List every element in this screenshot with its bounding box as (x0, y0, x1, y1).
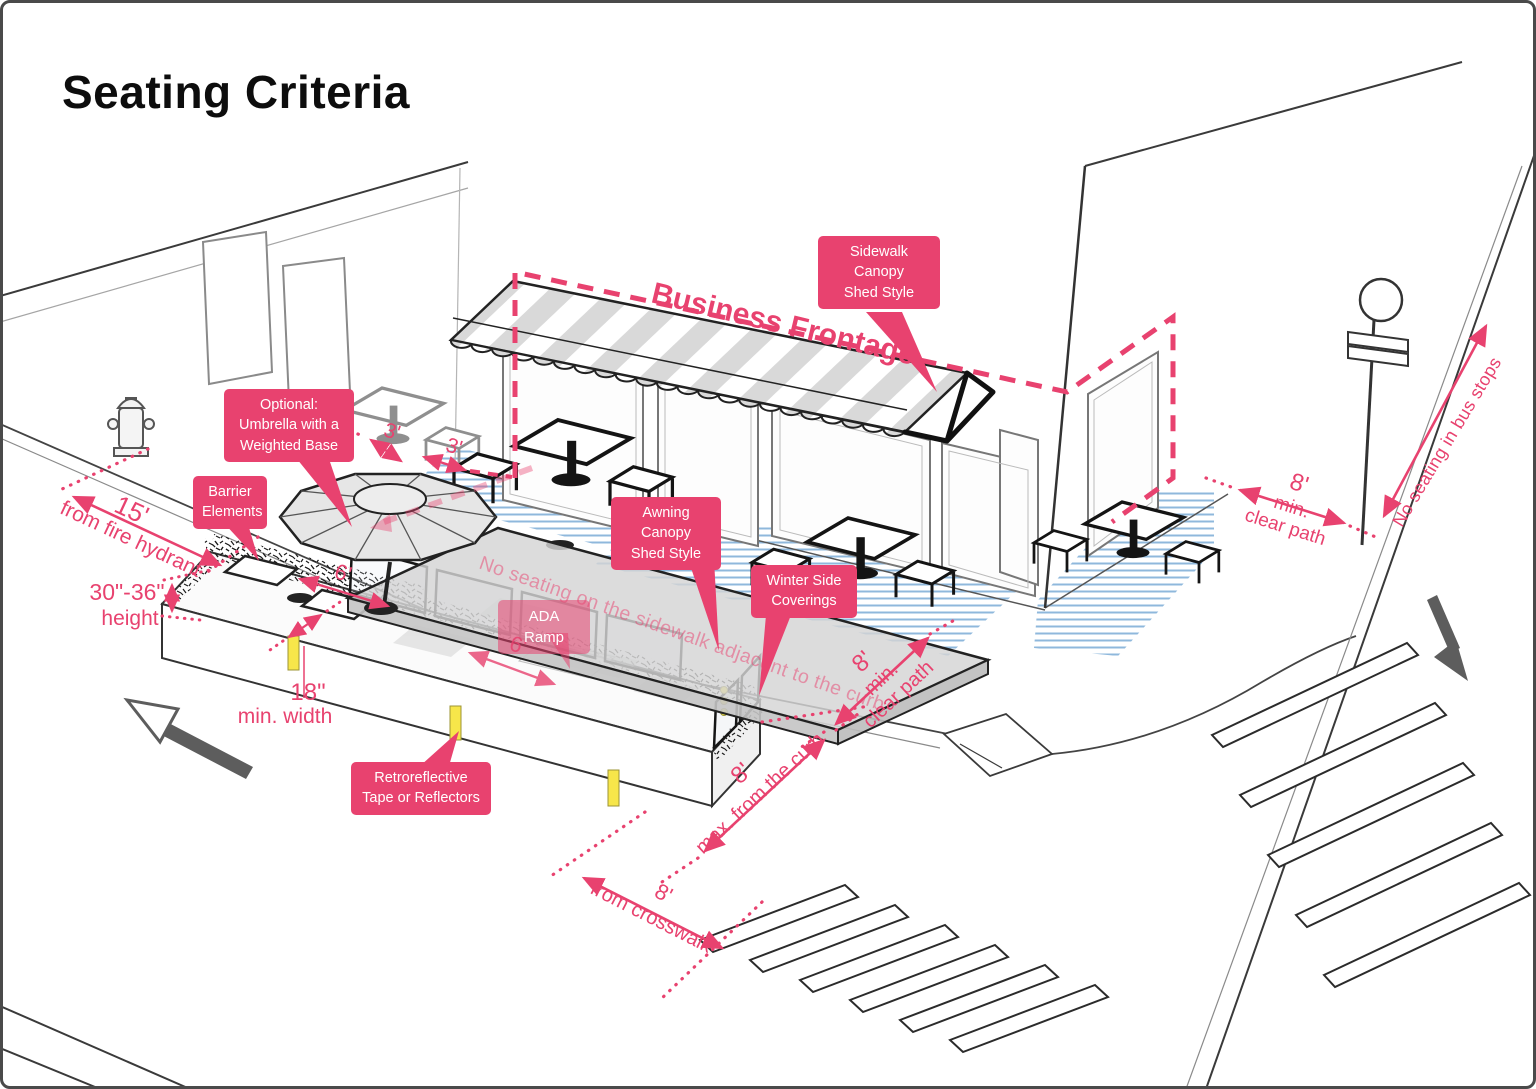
svg-text:30"-36": 30"-36" (89, 579, 164, 605)
label-sidewalk-canopy: Sidewalk Canopy Shed Style (818, 236, 940, 309)
label-winter-side-coverings: Winter Side Coverings (751, 565, 857, 618)
label-line: Retroreflective (360, 768, 482, 788)
label-line: Optional: (233, 395, 345, 415)
label-retroreflective: Retroreflective Tape or Reflectors (351, 762, 491, 815)
label-line: Barrier (202, 482, 258, 502)
svg-text:8': 8' (1286, 468, 1311, 499)
curb-ramp (944, 714, 1052, 776)
label-line: Canopy (827, 262, 931, 282)
traffic-arrow-left (127, 700, 253, 779)
svg-text:8': 8' (651, 878, 677, 908)
label-line: Winter Side (760, 571, 848, 591)
label-line: Sidewalk (827, 242, 931, 262)
label-line: Elements (202, 502, 258, 522)
crosswalk-left (700, 885, 1108, 1052)
svg-text:height: height (101, 607, 158, 630)
page-title: Seating Criteria (62, 65, 410, 119)
svg-text:18": 18" (290, 679, 325, 706)
label-barrier-elements: Barrier Elements (193, 476, 267, 529)
label-line: Canopy (620, 523, 712, 543)
label-line: Shed Style (620, 544, 712, 564)
scene-illustration: Business Frontage 15' from fire hydrant … (0, 0, 1536, 1089)
label-line: Shed Style (827, 283, 931, 303)
label-line: Umbrella with a (233, 415, 345, 435)
svg-text:min. width: min. width (238, 705, 333, 728)
label-line: Weighted Base (233, 436, 345, 456)
traffic-arrow-right (1427, 595, 1468, 681)
label-ada-ramp: ADA Ramp (498, 600, 590, 654)
svg-text:from crosswalk: from crosswalk (587, 877, 717, 958)
label-awning-canopy: Awning Canopy Shed Style (611, 497, 721, 570)
label-line: Awning (620, 503, 712, 523)
label-line: Coverings (760, 591, 848, 611)
poster-boards (203, 232, 350, 402)
label-line: ADA Ramp (507, 606, 581, 648)
no-seating-bus-note: No seating in bus stops (1388, 353, 1505, 530)
fire-hydrant-icon (108, 398, 154, 456)
label-optional-umbrella: Optional: Umbrella with a Weighted Base (224, 389, 354, 462)
diagram-canvas: Business Frontage 15' from fire hydrant … (0, 0, 1536, 1089)
label-line: Tape or Reflectors (360, 788, 482, 808)
